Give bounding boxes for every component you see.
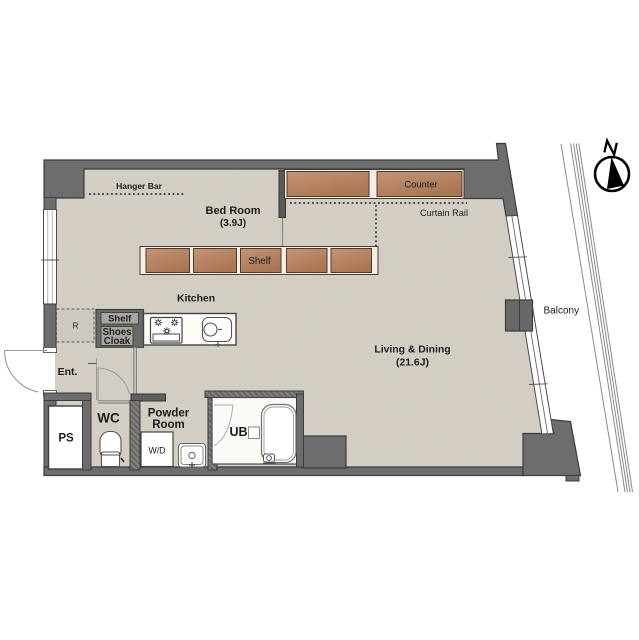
svg-text:Hanger Bar: Hanger Bar [116, 181, 163, 191]
svg-text:Balcony: Balcony [544, 306, 580, 317]
svg-text:(3.9J): (3.9J) [220, 218, 246, 229]
svg-text:(21.6J): (21.6J) [396, 358, 429, 369]
svg-text:Ent.: Ent. [58, 366, 78, 378]
svg-text:PS: PS [58, 433, 74, 445]
svg-text:Room: Room [152, 419, 185, 431]
svg-text:Living & Dining: Living & Dining [374, 344, 450, 355]
svg-text:Curtain Rail: Curtain Rail [420, 208, 468, 218]
svg-text:Bed Room: Bed Room [206, 205, 261, 217]
svg-text:R: R [73, 322, 79, 331]
svg-text:W/D: W/D [148, 446, 165, 456]
svg-text:UB: UB [229, 425, 247, 439]
svg-text:WC: WC [97, 410, 120, 425]
svg-text:Counter: Counter [404, 178, 437, 189]
svg-text:Shelf: Shelf [108, 314, 132, 325]
svg-text:Kitchen: Kitchen [177, 294, 215, 305]
svg-text:Cloak: Cloak [104, 336, 131, 347]
svg-text:Powder: Powder [148, 408, 190, 420]
svg-text:Shelf: Shelf [248, 256, 271, 267]
